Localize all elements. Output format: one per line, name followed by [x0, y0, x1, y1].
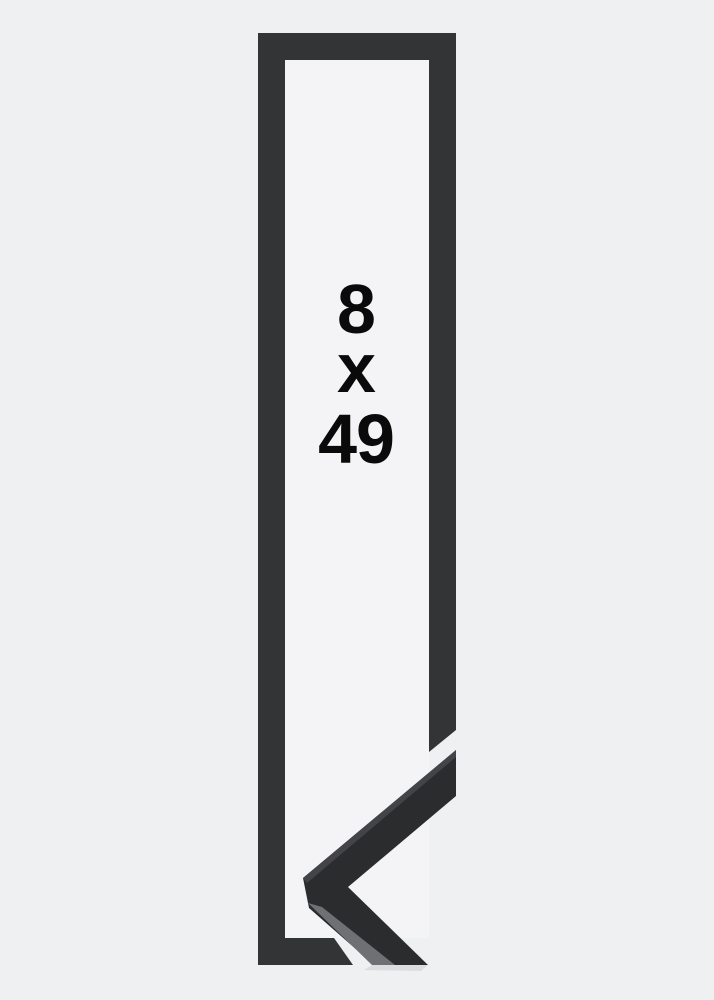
product-image: 8 x 49 — [0, 0, 714, 1000]
size-separator-text: x — [337, 329, 376, 407]
size-height-text: 49 — [318, 400, 394, 478]
frame-left-bar — [258, 33, 285, 965]
corner-sample-shadow — [364, 965, 428, 971]
frame-right-bar — [429, 33, 456, 752]
frame-preview-graphic: 8 x 49 — [0, 0, 714, 1000]
frame-top-bar — [258, 33, 456, 60]
